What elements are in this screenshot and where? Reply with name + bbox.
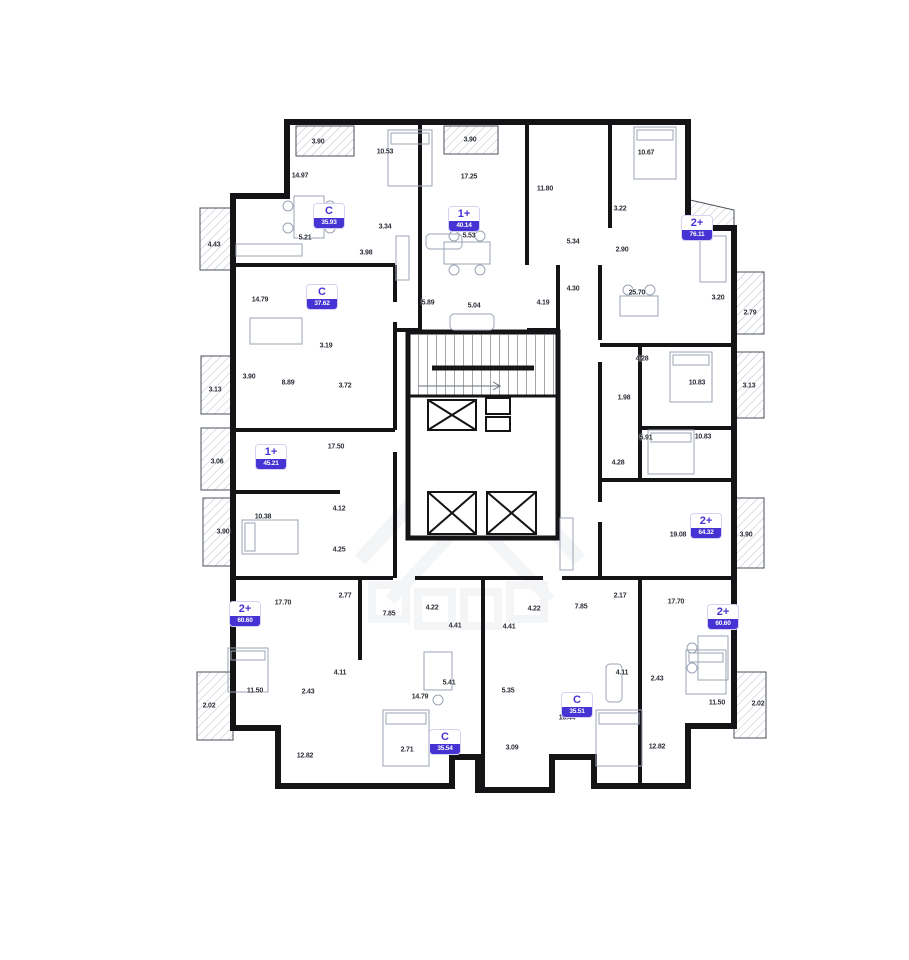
kitchen-counter: [396, 236, 409, 280]
unit-type-label: C: [562, 693, 592, 707]
balcony: [734, 498, 764, 568]
sofa: [700, 236, 726, 282]
kitchen-counter: [236, 244, 302, 256]
dining-table: [424, 652, 452, 705]
unit-type-label: 2+: [682, 216, 712, 230]
bed: [686, 650, 726, 694]
balcony: [203, 498, 233, 566]
bed: [596, 710, 642, 766]
bed: [242, 520, 298, 554]
unit-area-value: 35.93: [314, 218, 344, 228]
unit-badge[interactable]: 2+76.11: [682, 216, 712, 240]
unit-badge[interactable]: 2+64.32: [691, 514, 721, 538]
unit-area-value: 37.62: [307, 299, 337, 309]
unit-area-value: 35.54: [430, 744, 460, 754]
unit-area-value: 35.51: [562, 707, 592, 717]
bed: [383, 710, 429, 766]
bed: [648, 430, 694, 474]
unit-type-label: 2+: [691, 514, 721, 528]
balcony: [296, 126, 354, 156]
balcony: [201, 356, 233, 414]
unit-badge[interactable]: C35.93: [314, 204, 344, 228]
unit-badge[interactable]: 2+60.60: [708, 605, 738, 629]
unit-badge[interactable]: C35.54: [430, 730, 460, 754]
balcony: [734, 272, 764, 334]
bathtub: [606, 664, 622, 702]
balcony: [734, 352, 764, 418]
unit-type-label: 1+: [449, 207, 479, 221]
bed: [670, 352, 712, 402]
bed: [388, 130, 432, 186]
unit-badge[interactable]: 1+45.21: [256, 445, 286, 469]
sofa: [250, 318, 302, 344]
unit-type-label: C: [314, 204, 344, 218]
unit-badge[interactable]: C37.62: [307, 285, 337, 309]
balcony: [734, 672, 766, 738]
dining-table: [687, 636, 728, 680]
unit-type-label: 1+: [256, 445, 286, 459]
unit-area-value: 76.11: [682, 230, 712, 240]
unit-badge[interactable]: C35.51: [562, 693, 592, 717]
bathtub: [450, 314, 494, 330]
unit-area-value: 60.60: [230, 616, 260, 626]
balcony: [200, 208, 233, 270]
balcony: [444, 126, 498, 154]
unit-type-label: C: [307, 285, 337, 299]
unit-area-value: 60.60: [708, 619, 738, 629]
unit-area-value: 64.32: [691, 528, 721, 538]
floor-plan-drawing: [0, 0, 909, 960]
unit-badge[interactable]: 1+40.14: [449, 207, 479, 231]
unit-area-value: 40.14: [449, 221, 479, 231]
bed: [634, 127, 676, 179]
floor-plan-page: 3.9010.533.9014.9717.2511.8010.673.225.2…: [0, 0, 909, 960]
dining-table: [444, 231, 490, 275]
balcony: [201, 428, 233, 490]
unit-type-label: 2+: [708, 605, 738, 619]
dining-table: [620, 285, 658, 316]
unit-type-label: 2+: [230, 602, 260, 616]
unit-badge[interactable]: 2+60.60: [230, 602, 260, 626]
core: [408, 332, 558, 538]
unit-type-label: C: [430, 730, 460, 744]
unit-area-value: 45.21: [256, 459, 286, 469]
